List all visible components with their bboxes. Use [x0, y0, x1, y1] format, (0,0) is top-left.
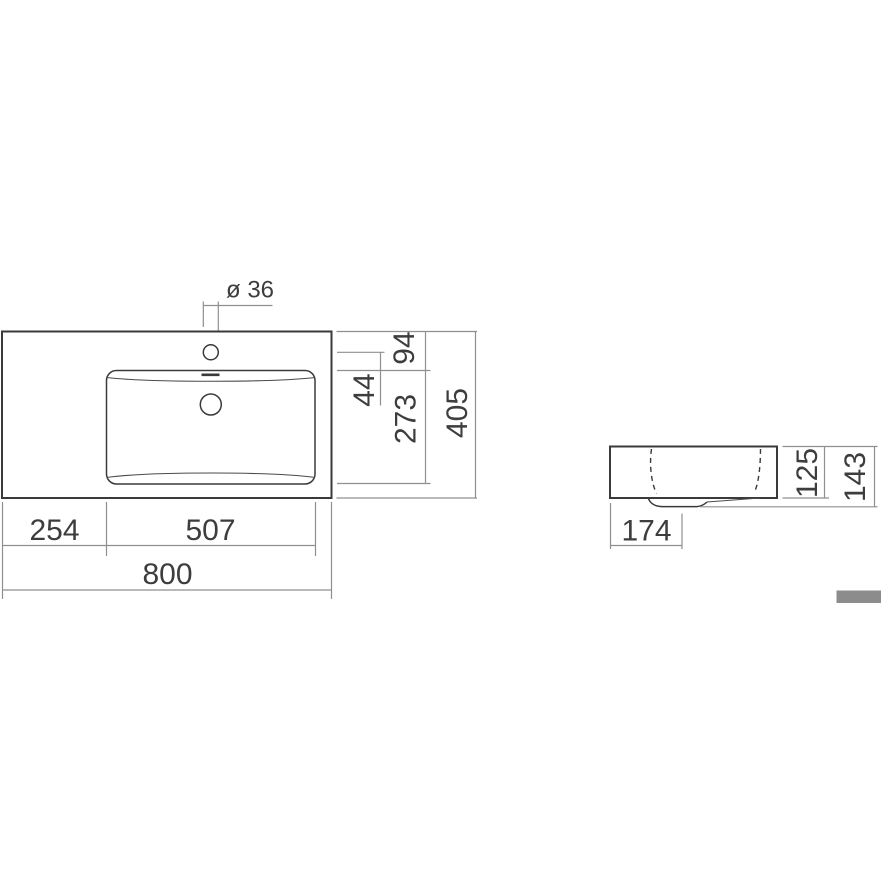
drain-outlet-profile — [649, 499, 708, 507]
technical-drawing-page: ø 36 94 44 273 405 254 507 8 — [0, 0, 881, 881]
faucet-hole — [203, 345, 218, 360]
footer-gray-bar — [837, 591, 881, 604]
hidden-basin-wall-left — [651, 449, 657, 494]
dim-label-143: 143 — [839, 452, 872, 502]
dim-label-44: 44 — [348, 373, 381, 406]
dim-label-405: 405 — [441, 388, 474, 438]
dim-label-507: 507 — [185, 514, 235, 547]
dim-label-hole-diameter: ø 36 — [226, 277, 274, 304]
side-view — [610, 447, 777, 507]
drain-hole — [200, 394, 221, 415]
basin-inner-rim-top — [107, 378, 316, 382]
dim-hole-diameter: ø 36 — [203, 277, 274, 331]
dims-width: 254 507 800 — [3, 502, 332, 599]
dims-depth: 94 44 273 405 — [337, 331, 478, 498]
dim-label-174: 174 — [621, 515, 671, 548]
washbasin-dimension-drawing: ø 36 94 44 273 405 254 507 8 — [0, 0, 881, 881]
dim-label-125: 125 — [791, 448, 824, 498]
hidden-basin-wall-right — [755, 449, 761, 492]
dim-label-273: 273 — [390, 394, 423, 444]
side-body-outline — [610, 447, 777, 499]
basin-inner-rim-bottom — [107, 473, 316, 478]
basin-outline — [107, 371, 316, 485]
top-view — [2, 332, 332, 499]
dim-label-800: 800 — [142, 558, 192, 591]
dim-label-254: 254 — [29, 514, 79, 547]
dim-label-94: 94 — [388, 331, 421, 364]
